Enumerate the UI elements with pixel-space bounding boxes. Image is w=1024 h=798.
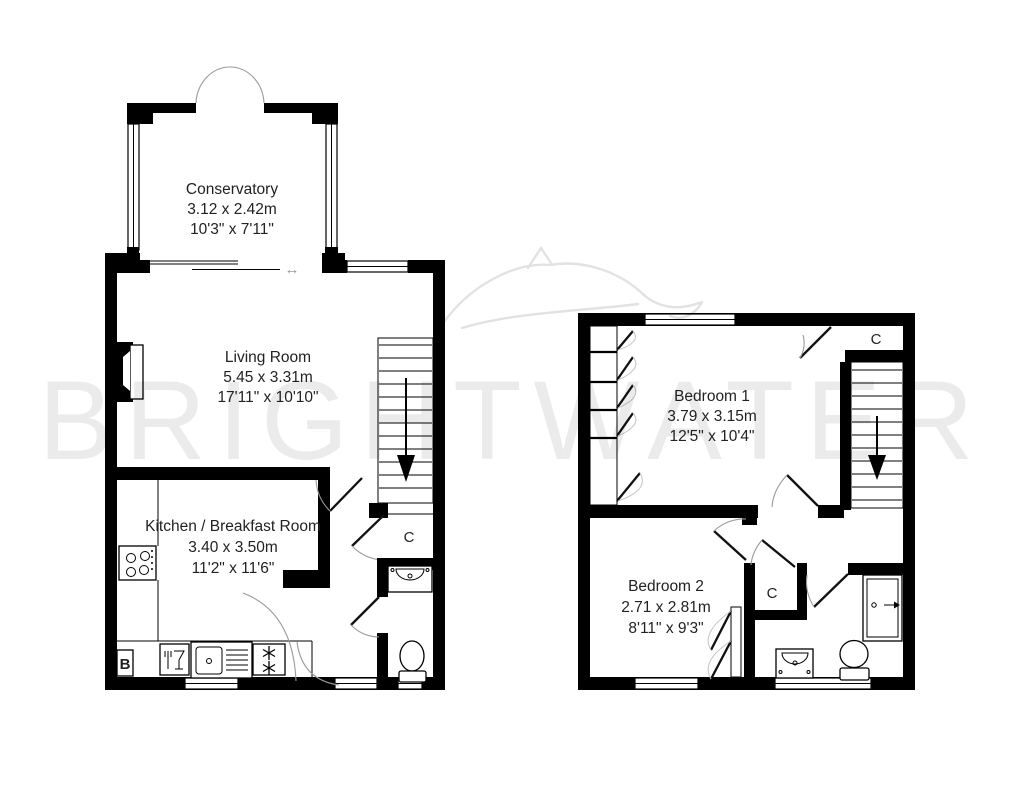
room-name: Bedroom 1 xyxy=(674,388,750,405)
first-floor-landing-cupboard-label: C xyxy=(767,585,778,602)
bedroom2-door xyxy=(714,519,746,560)
living-room-label: Living Room 5.45 x 3.31m 17'11" x 10'10" xyxy=(217,349,318,406)
room-size-imperial: 17'11" x 10'10" xyxy=(217,389,318,406)
fireplace xyxy=(117,342,143,402)
stairs-down-arrow-icon xyxy=(868,455,886,480)
sliding-door-arrow-icon: ↔ xyxy=(285,261,300,278)
kitchen-sink xyxy=(191,642,252,678)
landing-cupboard-door xyxy=(751,540,795,567)
first-floor-stairs xyxy=(840,362,903,510)
ground-floor-wc xyxy=(351,558,433,682)
room-name: Conservatory xyxy=(186,181,278,198)
room-size-metric: 5.45 x 3.31m xyxy=(223,369,313,386)
bedroom2-label: Bedroom 2 2.71 x 2.81m 8'11" x 9'3" xyxy=(621,578,711,637)
ground-cupboard-label: C xyxy=(404,529,415,546)
bedroom1-wardrobes xyxy=(590,326,642,505)
floorplan-page: ↔ xyxy=(0,0,1024,798)
top-cupboard xyxy=(800,327,903,362)
room-size-metric: 3.12 x 2.42m xyxy=(187,201,277,218)
understairs-cupboard xyxy=(352,515,384,560)
bathroom xyxy=(776,563,915,680)
room-name: Bedroom 2 xyxy=(628,578,704,595)
room-size-imperial: 10'3" x 7'11" xyxy=(190,221,274,238)
shower xyxy=(863,575,902,641)
bathroom-basin xyxy=(776,649,813,678)
room-size-metric: 3.79 x 3.15m xyxy=(667,408,757,425)
kitchen-label: Kitchen / Breakfast Room 3.40 x 3.50m 11… xyxy=(145,518,321,577)
conservatory-label: Conservatory 3.12 x 2.42m 10'3" x 7'11" xyxy=(186,181,278,238)
kitchen-dishwasher xyxy=(160,644,189,675)
floorplan-drawing: ↔ xyxy=(0,0,1024,798)
kitchen-hob xyxy=(119,546,156,580)
room-size-metric: 2.71 x 2.81m xyxy=(621,599,711,616)
stairs-down-arrow-icon xyxy=(397,455,415,482)
bedroom1-label: Bedroom 1 3.79 x 3.15m 12'5" x 10'4" xyxy=(667,388,757,445)
bedroom1-door xyxy=(772,475,818,507)
room-name: Kitchen / Breakfast Room xyxy=(145,518,321,535)
room-name: Living Room xyxy=(225,349,311,366)
room-size-imperial: 12'5" x 10'4" xyxy=(669,428,754,445)
room-size-imperial: 8'11" x 9'3" xyxy=(628,620,703,637)
ground-floor-stairs xyxy=(369,338,433,518)
room-size-imperial: 11'2" x 11'6" xyxy=(192,560,275,577)
sliding-door: ↔ xyxy=(148,261,300,278)
wc-basin xyxy=(388,566,432,592)
wc-toilet xyxy=(399,641,426,682)
boiler-label: B xyxy=(120,656,131,673)
bedroom-divider-walls xyxy=(578,505,844,525)
bedroom2-wardrobe xyxy=(708,607,741,679)
french-doors xyxy=(196,67,264,103)
kitchen-freezer xyxy=(253,644,285,675)
first-floor-top-cupboard-label: C xyxy=(871,331,882,348)
room-size-metric: 3.40 x 3.50m xyxy=(188,539,278,556)
bathroom-toilet xyxy=(840,641,869,681)
room-labels: Conservatory 3.12 x 2.42m 10'3" x 7'11" … xyxy=(120,181,882,673)
